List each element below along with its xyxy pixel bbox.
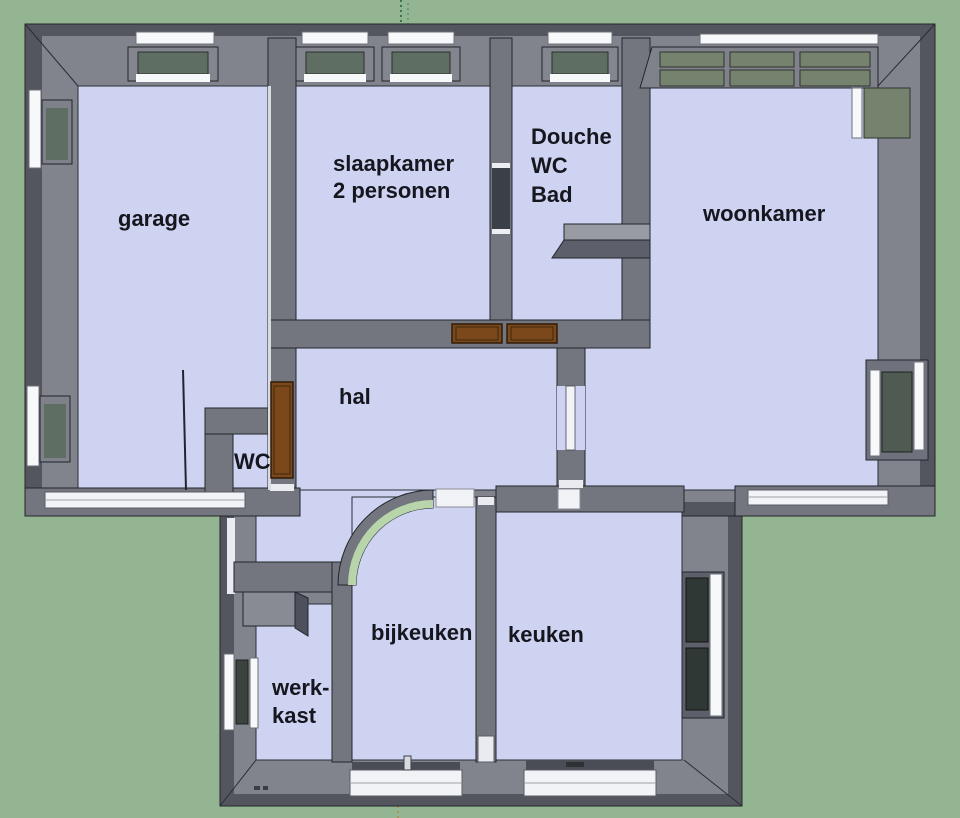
window-garage-bottom-band	[45, 492, 245, 508]
room-label-bijkeuken: bijkeuken	[371, 619, 472, 646]
window-woonkamer-right	[866, 360, 928, 460]
wall-wc-top	[205, 408, 268, 434]
werkkast-shelf	[243, 592, 295, 626]
door-opening-slaapkamer-badkamer	[492, 166, 510, 232]
window-keuken-right	[682, 572, 724, 718]
bottom-wall-mark	[263, 786, 268, 790]
window-garage-left-top	[29, 90, 72, 168]
room-label-garage: garage	[118, 205, 190, 232]
wall-badkamer-alcove-top	[564, 224, 650, 240]
wall-keuken-top	[496, 486, 684, 512]
werkkast-shelf-side	[295, 592, 308, 636]
bottom-wall-mark	[254, 786, 260, 790]
wall-badkamer-alcove-front	[552, 240, 650, 258]
room-label-keuken: keuken	[508, 621, 584, 648]
room-label-woonkamer: woonkamer	[703, 200, 825, 227]
wall-end-cap	[478, 736, 494, 762]
door-jamb	[492, 229, 510, 234]
wall-end-cap	[270, 484, 294, 491]
door-leaf-white	[566, 386, 575, 450]
window-woonkamer-bottom-band	[748, 490, 888, 505]
window-slaapkamer-top-1	[296, 32, 374, 82]
window-slaapkamer-top-2	[382, 32, 460, 82]
room-label-wc: WC	[234, 448, 271, 475]
room-label-hal: hal	[339, 383, 371, 410]
window-woonkamer-corner	[852, 88, 910, 138]
threshold-hal-bijkeuken	[436, 489, 474, 507]
floorplan-canvas	[0, 0, 960, 818]
wall-bijkeuken-keuken	[476, 497, 496, 762]
room-label-werkkast: werk- kast	[272, 674, 329, 730]
wall-end-cap	[559, 480, 583, 488]
room-floor-slaapkamer	[296, 86, 490, 322]
window-garage-top	[128, 32, 218, 82]
window-werkkast-left	[224, 654, 258, 730]
door-hal-slaapkamer	[452, 324, 502, 343]
floorplan-stage: garage slaapkamer 2 personen Douche WC B…	[0, 0, 960, 818]
room-label-badkamer: Douche WC Bad	[531, 122, 612, 209]
door-bijkeuken-bottom	[350, 756, 462, 796]
room-floor-hal	[296, 348, 557, 490]
door-hal-badkamer	[507, 324, 557, 343]
wall-end-cap	[478, 497, 494, 505]
window-garage-left-bottom	[27, 386, 70, 466]
room-label-slaapkamer: slaapkamer 2 personen	[333, 150, 454, 204]
window-keuken-bottom	[524, 760, 656, 796]
door-hal-garage	[271, 382, 293, 478]
wall-werkkast-bijkeuken	[332, 562, 352, 762]
threshold-hal-keuken	[558, 489, 580, 509]
door-jamb	[492, 163, 510, 168]
window-badkamer-top	[542, 32, 618, 82]
